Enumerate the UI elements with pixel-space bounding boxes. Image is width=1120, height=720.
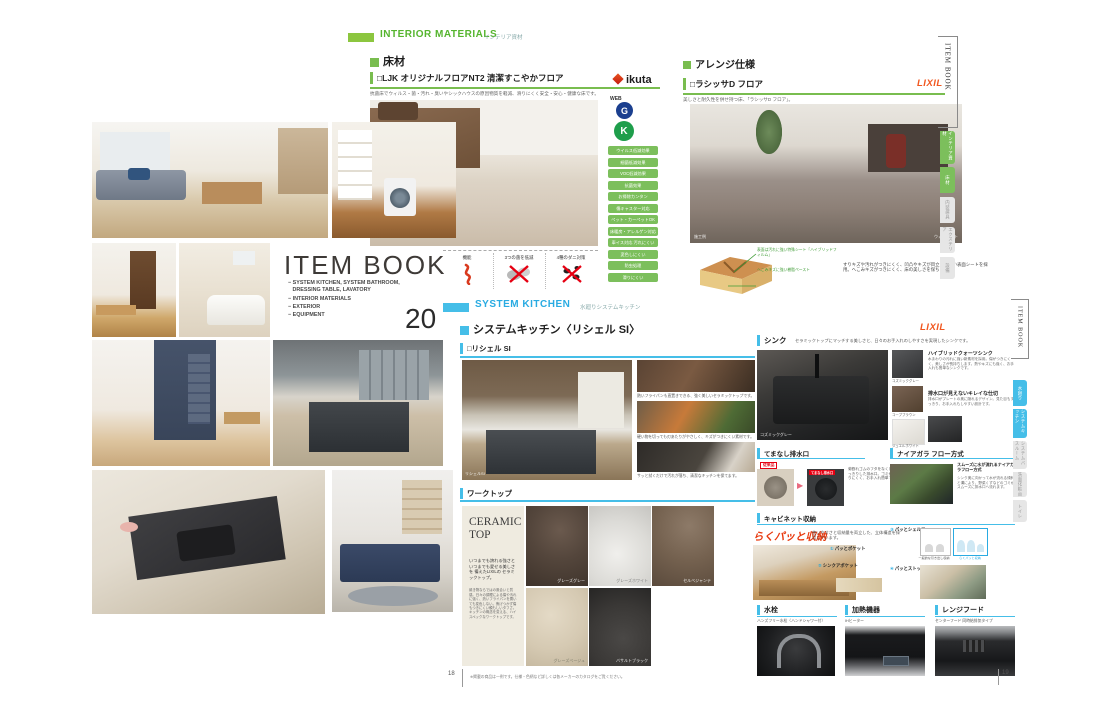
edge-tab-mizumawari: 水廻り [1013, 380, 1027, 406]
ceramic-photo-2: グレーズホワイト [589, 506, 651, 586]
item-book-toc-line: DRESSING TABLE, LAVATORY [288, 287, 371, 293]
edge-tab-vanity: 洗面化粧台 [1013, 472, 1027, 497]
drain-cover-shape [815, 478, 837, 500]
bench-shape [96, 305, 136, 315]
photo-bedroom-navy [332, 470, 453, 612]
kitchen-main-photo: リシェルSI [462, 360, 632, 480]
dining-table-shape [202, 182, 262, 204]
hood-rule [935, 616, 1015, 617]
sink-photo-caption: コズミックグレー [760, 432, 792, 438]
floor-rule [370, 87, 660, 89]
plant-shape [756, 110, 782, 154]
island-shape [309, 402, 409, 452]
heater-heading: 加熱機器 [845, 605, 880, 615]
interior-materials-tag-ja: インテリア資材 [484, 33, 523, 41]
item-book-toc-line: − SYSTEM KITCHEN, SYSTEM BATHROOM, [288, 280, 400, 286]
sink-feature2-text: 排水口がプレートの奥に隠れるデザイン。見た目もすっきり、お手入れもしやすい設計で… [928, 397, 1016, 406]
arrange-product-title: □ラシッサD フロア [683, 78, 763, 90]
kitchen-page-edge-title: ITEM BOOK [1011, 299, 1029, 359]
stair-shape [402, 480, 442, 534]
feature-badge: ウイルス低減効果 [608, 146, 658, 155]
drain-rule [757, 458, 865, 459]
cabinet-corner-photo [920, 565, 986, 599]
drain-photo-after: てまなし排水口 [807, 469, 844, 506]
niagara-text: シンク奥に向かって水が流れる傾斜と溝により、野菜くずなどのゴミがスムーズに排水口… [957, 476, 1015, 490]
faucet-caption: ハンズフリー水栓〈ハンドシャワー付〉 [757, 619, 837, 624]
ikuta-diamond-icon [612, 73, 623, 84]
sink-swatch-3 [892, 419, 925, 445]
cabinet-heading: キャビネット収納 [757, 513, 816, 523]
drain-cover-shape [764, 476, 787, 499]
drain-label-after: てまなし排水口 [809, 470, 835, 475]
cabinet-item-2: ②シンクアポケット [818, 563, 878, 569]
sink-feature1-title: ハイブリッドクォーツシンク [928, 350, 1018, 357]
feature-badge: 滑りにくい [608, 273, 658, 282]
bed-shape [340, 544, 440, 582]
drain-photo-before [757, 469, 794, 506]
green-square-icon [370, 58, 379, 67]
hood-vent-shape [963, 640, 985, 652]
feature-icon-row: 機能 3つの菌を低減 4種のダニ対策 [443, 250, 598, 291]
shelf-shape [338, 130, 372, 200]
worktop-rule [460, 500, 755, 502]
ceramic-caption: グレーズベージュ [554, 658, 585, 664]
ceramic-panel-title: CERAMIC TOP [462, 506, 513, 542]
bathtub-shape [207, 295, 265, 325]
arrange-lead: 美しさと耐久性を併せ持つ床、「ラシッサD フロア」。 [683, 97, 943, 103]
sink-feature1-text: 水まわりの汚れに強い新素材を採用。傷がつきにくく、美しさが長持ちします。熱やキズ… [928, 357, 1016, 371]
ceramic-caption: バサルトブラック [616, 658, 648, 664]
faucet-shape [815, 354, 819, 378]
feature-label: 3つの菌を低減 [495, 255, 543, 261]
ceramic-photo-3: セルベジャンテ [652, 506, 714, 586]
photo-living-room [92, 122, 328, 238]
cushion-shape [128, 168, 150, 180]
bath-window-shape [233, 251, 255, 265]
cabinet-diagram-2 [953, 528, 988, 556]
diagram-note1: 表面は汚れに強い特殊シート「ハイブリッドフィルム」 [757, 248, 839, 257]
faucet-heading: 水栓 [757, 605, 778, 615]
feature-badge: VOC低減効果 [608, 169, 658, 178]
floor-lead: 抗菌床でウィルス・菌・汚れ・臭いやシックハウスの原因物質を軽減、滑りにくく安全・… [370, 91, 650, 97]
page-number-left: 18 [448, 671, 455, 677]
ceramic-photo-5: バサルトブラック [589, 588, 651, 666]
drain-label-before: 従来品 [760, 462, 777, 469]
edge-tab-floor: 床材 [940, 167, 955, 193]
item-book-toc-line: − EXTERIOR [288, 304, 320, 310]
system-kitchen-tag-ja: 水廻りシステムキッチン [580, 303, 640, 311]
sink-basin-shape [773, 376, 869, 424]
edge-tab-toilet: トイレ [1013, 500, 1027, 522]
hood-caption: センターフード 同時給排気タイプ [935, 619, 1015, 624]
counter-sample-photo [836, 578, 882, 592]
pillow-shape [378, 102, 418, 120]
kitchen-detail-photo-2 [637, 401, 755, 433]
kitchen-rule [460, 356, 755, 358]
heater-photo [845, 626, 925, 676]
cyan-square-icon [460, 326, 469, 335]
feature-badge: 抗菌効果 [608, 181, 658, 190]
cabinet-diagram-label-2: らくパッと収納 [953, 556, 987, 561]
edge-tab-exterior: エクステリア [940, 227, 955, 253]
niagara-photo [890, 464, 953, 504]
heater-caption: IHヒーター [845, 619, 925, 624]
hood-photo [935, 626, 1015, 676]
drain-heading: てまなし排水口 [757, 448, 809, 458]
page-divider-right [998, 669, 999, 685]
kitchen-detail-caption-3: サッと拭くだけで汚れが落ち、清潔なキッチンを保てます。 [637, 474, 755, 479]
door-glass-shape [188, 354, 210, 424]
page-divider-left [462, 669, 463, 687]
niagara-title: スムーズに水が流れるナイアガラフロー方式 [957, 462, 1015, 472]
web-label: WEB [610, 96, 622, 102]
kitchen-heading: システムキッチン〈リシェル SI〉 [460, 321, 640, 337]
photo-entry-hall [92, 243, 176, 337]
feature-badge: 変色しにくい [608, 250, 658, 259]
feature-label: 機能 [443, 255, 491, 261]
catalog-spread: INTERIOR MATERIALS インテリア資材 床材 □LJK オリジナル… [0, 0, 1120, 720]
photo-dark-kitchen [273, 340, 443, 466]
edge-tab-systembath: システムバスルーム [1013, 441, 1027, 469]
good-design-award-icon: G [616, 102, 633, 119]
edge-tab-systemkitchen: システムキッチン [1013, 409, 1027, 438]
lixil-logo: LIXIL [920, 322, 946, 333]
floor-layer-diagram [698, 252, 774, 298]
sink-swatch-caption-1: コズミックグレー [892, 379, 926, 384]
edge-tab-doors: 内装建具 [940, 197, 955, 223]
faucet-rule [757, 616, 837, 617]
kitchen-detail-photo-1 [637, 360, 755, 392]
feature-badge: 防虫処理 [608, 261, 658, 270]
heater-control-shape [883, 656, 909, 666]
cabinet-lead: 使いやすさと収納量を両立した、立体構造を採用しています。 [812, 530, 900, 540]
arrange-rule [683, 93, 945, 95]
kitchen-detail-photo-3 [637, 442, 755, 472]
photo-hallway-navy-wall [92, 340, 270, 466]
accent-wall-shape [278, 128, 328, 194]
worktop-heading: ワークトップ [460, 488, 512, 499]
door-shape [130, 251, 156, 309]
item-book-volume: 20 [405, 303, 436, 335]
ceramic-photo-4: グレーズベージュ [526, 588, 588, 666]
feature-badge: 細菌低減効果 [608, 158, 658, 167]
cabinet-rule [757, 524, 1015, 525]
edge-tab-interior: インテリア資材 [940, 131, 955, 164]
kids-design-award-icon: K [614, 121, 634, 141]
hood-heading: レンジフード [935, 605, 984, 615]
cabinet-diagram-label-1: 一般的な引き出し収納 [916, 556, 952, 561]
floor-product-title: □LJK オリジナルフロアNT2 清潔すこやかフロア [370, 72, 563, 84]
island-shape [486, 430, 596, 474]
ceramic-photo-1: グレーズグレー [526, 506, 588, 586]
item-book-title: ITEM BOOK [284, 250, 446, 281]
feature-badge: 床暖房・アレルゲン対応 [608, 227, 658, 236]
feature-badge: 車イス対応 汚れにくい [608, 238, 658, 247]
cabinet-diagram-1 [920, 528, 951, 556]
glass-cabinet-shape [359, 350, 429, 400]
interior-materials-tag: INTERIOR MATERIALS [380, 29, 497, 40]
kitchen-photo-caption: リシェルSI [465, 471, 485, 477]
ceramic-caption: グレーズホワイト [616, 578, 648, 584]
arrange-section-heading: アレンジ仕様 [683, 56, 755, 71]
arrange-room-photo: 施工例 ウォルナット [690, 104, 962, 243]
ceramic-caption: セルベジャンテ [683, 578, 711, 584]
diagram-text: すりキズや汚れがつきにくく、凹凸やキズが目立ちにくい表面シートを採用。へこみキズ… [843, 262, 993, 273]
sink-lead: セラミックトップにマッチする美しさと、日々のお手入れのしやすさを実現したシンクで… [795, 338, 1005, 343]
bench-shape [224, 412, 260, 424]
interior-materials-tag-bar [348, 33, 374, 42]
page-number-right: 19 [1002, 670, 1009, 676]
ikuta-logo: ikuta [614, 70, 652, 88]
faucet-arc-shape [777, 634, 821, 668]
washer-door-shape [390, 188, 410, 208]
floor-section-heading: 床材 [370, 53, 405, 69]
ceramic-panel: CERAMIC TOP いつまでも誇れる強さと いつまでも愛せる美しさを 備えた… [462, 506, 524, 666]
sink-divider-photo [928, 416, 962, 442]
ceramic-panel-body: 焼き物ならではの風合いと質感。日々の調理による傷や汚れに強く、熱いフライパンを置… [462, 580, 524, 619]
kitchen-detail-caption-2: 硬い物を切っても刃あたりがやさしく、キズがつきにくい素材です。 [637, 435, 755, 440]
ribbon-icon [459, 263, 477, 285]
system-kitchen-tag-bar [443, 303, 469, 312]
kitchen-model-label: □リシェル SI [460, 343, 511, 354]
sink-heading: シンク [757, 335, 787, 346]
item-book-toc-line: − EQUIPMENT [288, 312, 325, 318]
kitchen-footnote: ※掲載の商品は一例です。仕様・色柄など詳しくは各メーカーのカタログをご覧ください… [470, 674, 770, 680]
chair-shape [886, 134, 906, 168]
diagram-note2: へこみキズに強い樹脂ペースト [757, 268, 835, 273]
desk-shape [868, 124, 948, 172]
ceramic-panel-lead: いつまでも誇れる強さと いつまでも愛せる美しさを 備えたLIXILの セラミック… [462, 542, 524, 580]
edge-tab-equipment: 設備 [940, 257, 955, 279]
photo-bathroom [179, 243, 270, 337]
feature-badge: ペット・カーペットOK [608, 215, 658, 224]
sink-swatch-1 [892, 350, 923, 378]
photo-laundry-room [332, 122, 456, 238]
floor-page-edge-title: ITEM BOOK [938, 36, 958, 128]
feature-badge: お掃除カンタン [608, 192, 658, 201]
mite-control-icon [559, 263, 585, 285]
photo-vanity [92, 470, 325, 614]
sink-feature2-title: 排水口が見えないキレイな仕切 [928, 390, 1018, 397]
cabinet-item-1: ①パッとポケット [830, 546, 890, 552]
arrow-right-icon: ▶ [797, 481, 803, 490]
niagara-rule [890, 458, 1015, 459]
faucet-photo [757, 626, 835, 676]
kitchen-detail-caption-1: 熱いフライパンも直置きできる、強く美しいセラミックトップです。 [637, 394, 755, 399]
germ-reduction-icon [505, 263, 533, 285]
sink-swatch-caption-2: コーブブラウン [892, 413, 926, 418]
window-shape [578, 372, 624, 428]
system-kitchen-tag: SYSTEM KITCHEN [475, 299, 570, 310]
feature-label: 4種のダニ対策 [547, 255, 595, 261]
feature-badge: 傷キャスター対応 [608, 204, 658, 213]
green-square-icon [683, 61, 691, 69]
ceramic-caption: グレーズグレー [557, 578, 585, 584]
sink-photo: コズミックグレー [757, 350, 888, 440]
plate-shape [120, 522, 138, 532]
item-book-toc-line: − INTERIOR MATERIALS [288, 296, 351, 302]
heater-rule [845, 616, 925, 617]
wall-shape [480, 100, 598, 155]
rug-shape [348, 586, 438, 606]
niagara-heading: ナイアガラ フロー方式 [890, 448, 964, 458]
arrange-photo-caption-left: 施工例 [694, 234, 706, 240]
sink-swatch-2 [892, 386, 923, 412]
